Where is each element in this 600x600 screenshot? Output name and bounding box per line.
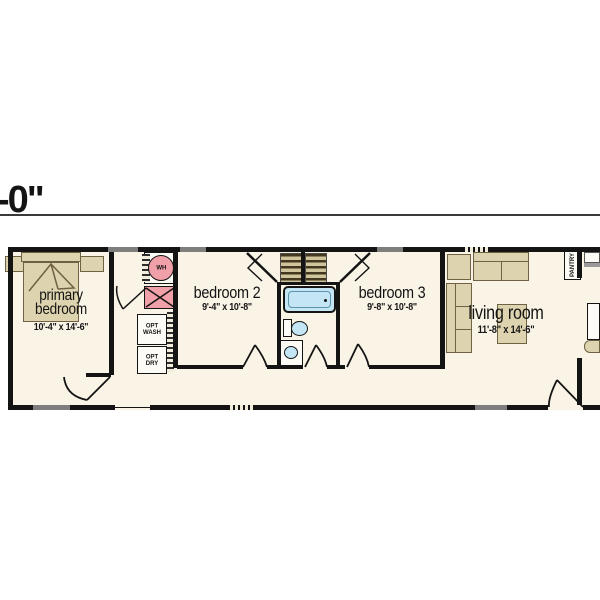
window-hall-bottom-hatched xyxy=(228,405,253,410)
sofa-left-back-line xyxy=(455,284,456,352)
kitchen-appliance xyxy=(587,303,600,340)
closet-bedroom2-hangers xyxy=(281,254,301,282)
wall-closet-bath-divider xyxy=(277,282,340,285)
hall-wall-segment-4 xyxy=(369,365,445,369)
hall-wall-segment-2 xyxy=(267,365,303,369)
window-living-top-hatched xyxy=(463,247,490,252)
bathtub xyxy=(283,286,336,313)
bedroom2-dims: 9'-4" x 10'-8" xyxy=(185,301,270,313)
kitchen-chair xyxy=(584,340,600,353)
bedroom3-label: bedroom 3 xyxy=(350,283,435,303)
water-heater: WH xyxy=(148,255,174,281)
hall-wall-segment-1 xyxy=(177,365,243,369)
furnace-box xyxy=(144,286,176,309)
primary-bedroom-dims: 10'-4" x 14'-6" xyxy=(19,321,104,333)
wall-utility-bedroom2 xyxy=(173,252,178,368)
utility-opening-threshold xyxy=(115,407,150,409)
wall-bedroom3-living xyxy=(440,252,445,368)
wall-living-kitchen-bottom xyxy=(577,358,582,410)
wall-living-kitchen-top xyxy=(577,247,582,278)
optional-washer-label: OPT WASH xyxy=(143,323,161,336)
wall-closet-divider xyxy=(301,252,305,284)
window-living-bottom xyxy=(475,405,507,410)
wall-primary-door-stub xyxy=(86,373,111,377)
bath-sink-cabinet xyxy=(280,340,303,366)
front-door-opening xyxy=(548,405,583,410)
pantry-label: PANTRY xyxy=(569,253,576,277)
living-room-label: living room xyxy=(459,303,553,325)
window-primary-top xyxy=(108,247,138,252)
primary-bedroom-label: primary bedroom xyxy=(19,289,104,317)
hall-wall-segment-3 xyxy=(327,365,345,369)
armchair xyxy=(447,254,471,280)
exterior-wall-left xyxy=(8,247,13,410)
bedroom2-label: bedroom 2 xyxy=(185,283,270,303)
nightstand-right xyxy=(80,256,104,272)
bathtub-drain xyxy=(324,299,327,302)
wall-bath-right xyxy=(336,282,340,369)
exterior-wall-bottom xyxy=(8,405,600,410)
living-room-dims: 11'-8" x 14'-6" xyxy=(459,324,553,336)
water-heater-label: WH xyxy=(156,265,166,271)
window-primary-bottom xyxy=(33,405,70,410)
optional-dryer-label: OPT DRY xyxy=(144,354,161,367)
optional-washer: OPT WASH xyxy=(137,314,167,345)
closet-bedroom3-hangers xyxy=(306,254,326,282)
wall-primary-utility xyxy=(109,252,114,375)
dimension-line xyxy=(0,214,600,216)
kitchen-counter-top-right xyxy=(584,252,600,263)
kitchen-counter-edge xyxy=(584,263,600,267)
window-bedroom2-top xyxy=(180,247,206,252)
bedroom3-dims: 9'-8" x 10'-8" xyxy=(350,301,435,313)
wall-bath-left xyxy=(277,282,281,369)
overall-dimension-label: -0" xyxy=(0,179,43,222)
sofa-cushion-divider xyxy=(501,261,502,280)
floorplan-screenshot: -0" WH OPT WASH OPT DRY xyxy=(0,0,600,600)
sofa-top xyxy=(473,252,529,281)
bed-headboard xyxy=(21,252,81,262)
toilet-bowl xyxy=(291,321,308,336)
bath-sink-basin xyxy=(284,346,298,359)
window-bedroom3-top xyxy=(377,247,403,252)
optional-dryer: OPT DRY xyxy=(137,346,167,374)
